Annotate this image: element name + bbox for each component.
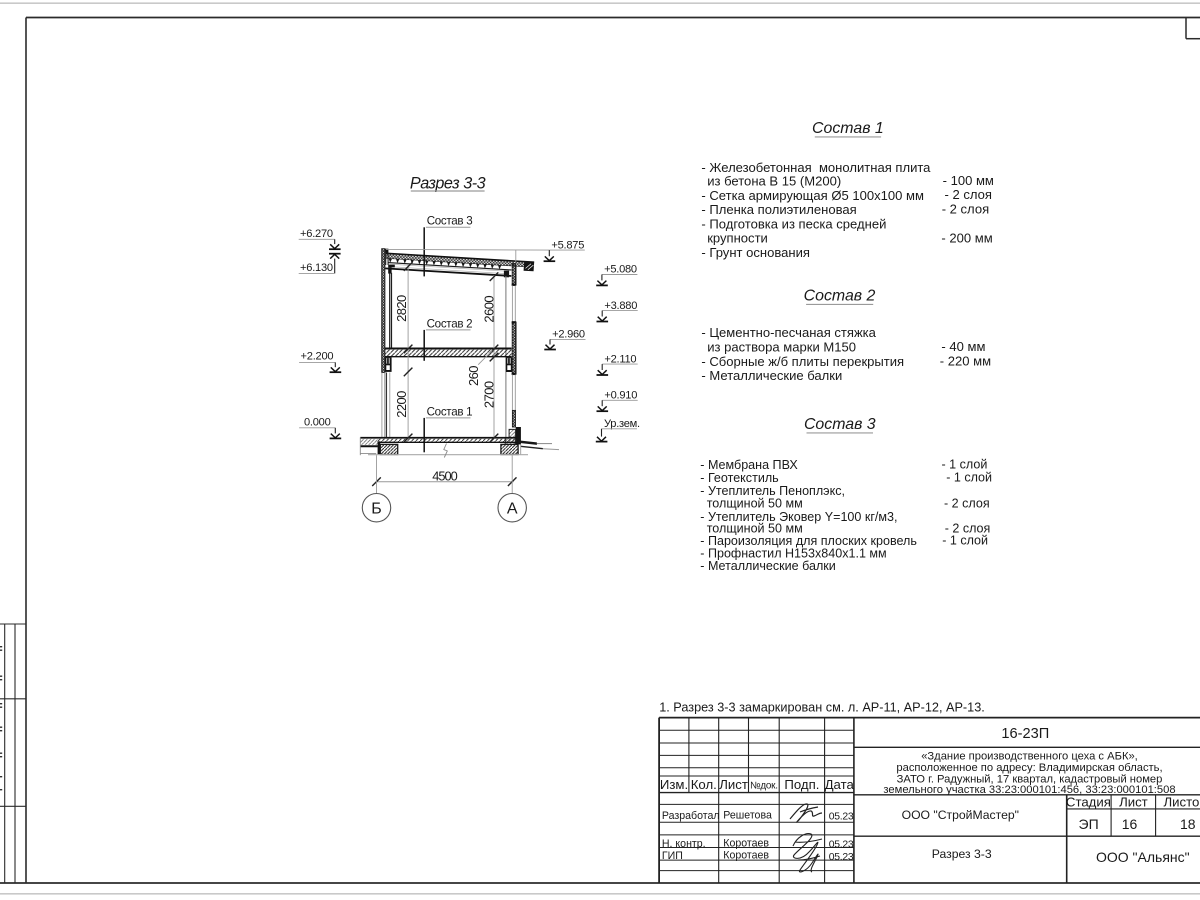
svg-text:№док.: №док. [750, 780, 778, 791]
svg-text:ООО "СтройМастер": ООО "СтройМастер" [902, 808, 1019, 822]
svg-text:толщиной 50 мм: толщиной 50 мм [707, 497, 803, 511]
svg-text:- 1 слой: - 1 слой [942, 534, 988, 548]
svg-text:05.23: 05.23 [829, 852, 854, 863]
svg-text:2700: 2700 [481, 381, 496, 408]
svg-text:Изм.: Изм. [660, 777, 688, 792]
svg-text:Состав 3: Состав 3 [427, 215, 473, 228]
svg-text:4500: 4500 [432, 468, 457, 483]
svg-text:из бетона В 15 (М200): из бетона В 15 (М200) [707, 173, 841, 188]
svg-text:Состав 1: Состав 1 [812, 120, 884, 137]
svg-text:2600: 2600 [481, 296, 496, 323]
svg-text:ГИП: ГИП [662, 850, 683, 862]
svg-text:крупности: крупности [707, 231, 768, 246]
svg-text:18: 18 [1180, 816, 1196, 832]
svg-text:- 220 мм: - 220 мм [940, 353, 991, 368]
svg-text:+2.200: +2.200 [301, 351, 334, 363]
svg-text:- 200 мм: - 200 мм [941, 230, 992, 245]
svg-text:Решетова: Решетова [723, 810, 772, 822]
svg-text:2820: 2820 [394, 295, 409, 322]
svg-text:Коротаев: Коротаев [723, 838, 769, 850]
svg-text:Б: Б [371, 500, 382, 517]
svg-text:16: 16 [1122, 816, 1138, 832]
svg-text:Подп.: Подп. [784, 777, 819, 792]
svg-text:А: А [507, 500, 518, 517]
svg-text:Коротаев: Коротаев [723, 850, 769, 862]
svg-text:Ур.зем.: Ур.зем. [604, 418, 640, 430]
svg-text:- Металлические балки: - Металлические балки [701, 368, 842, 383]
svg-text:«Здание производственного цеха: «Здание производственного цеха с АБК», [921, 750, 1138, 762]
svg-text:- Сборные ж/б плиты перекрытия: - Сборные ж/б плиты перекрытия [701, 354, 904, 369]
svg-text:16-23П: 16-23П [1001, 726, 1049, 742]
svg-text:Лист: Лист [719, 777, 748, 792]
svg-text:- Грунт основания: - Грунт основания [701, 245, 810, 260]
svg-text:Дата: Дата [825, 777, 855, 792]
svg-text:расположенное по адресу: Влади: расположенное по адресу: Владимирская об… [896, 762, 1162, 774]
svg-text:- Металлические балки: - Металлические балки [700, 559, 836, 573]
svg-text:Состав 2: Состав 2 [804, 288, 876, 305]
svg-text:1. Разрез 3-3 замаркирован см.: 1. Разрез 3-3 замаркирован см. л. АР-11,… [659, 701, 985, 715]
svg-text:- 100 мм: - 100 мм [943, 173, 994, 188]
svg-text:Листов: Листов [1164, 795, 1200, 810]
svg-text:Состав 3: Состав 3 [804, 416, 876, 433]
svg-text:- 2 слоя: - 2 слоя [945, 187, 992, 202]
svg-text:Разрез 3-3: Разрез 3-3 [410, 174, 486, 192]
svg-text:Н. контр.: Н. контр. [662, 838, 706, 850]
svg-text:- Цементно-песчаная стяжка: - Цементно-песчаная стяжка [701, 325, 876, 340]
svg-text:Разработал: Разработал [662, 810, 720, 822]
svg-text:Состав 2: Состав 2 [427, 317, 473, 330]
svg-text:Стадия: Стадия [1066, 795, 1111, 810]
svg-text:+3.880: +3.880 [604, 300, 637, 312]
svg-text:+6.270: +6.270 [300, 228, 333, 240]
svg-text:- 2 слоя: - 2 слоя [944, 496, 990, 510]
svg-text:+5.080: +5.080 [604, 264, 637, 276]
svg-text:- 40 мм: - 40 мм [941, 339, 985, 354]
svg-text:+0.910: +0.910 [604, 390, 637, 402]
svg-text:- Сетка армирующая Ø5 100х100: - Сетка армирующая Ø5 100х100 мм [701, 188, 924, 203]
svg-text:Лист: Лист [1119, 794, 1148, 809]
svg-text:260: 260 [466, 366, 481, 386]
svg-text:- Геотекстиль: - Геотекстиль [700, 471, 779, 485]
svg-text:- 1 слой: - 1 слой [942, 458, 988, 472]
svg-text:+2.960: +2.960 [552, 329, 585, 341]
svg-text:- 2 слоя: - 2 слоя [942, 202, 989, 217]
svg-text:Разрез 3-3: Разрез 3-3 [932, 847, 992, 861]
svg-text:Кол.: Кол. [691, 777, 717, 792]
svg-text:+2.110: +2.110 [604, 353, 636, 365]
svg-text:05.23: 05.23 [829, 812, 854, 823]
svg-text:0.000: 0.000 [304, 416, 331, 428]
svg-text:Состав 1: Состав 1 [427, 405, 473, 418]
svg-text:05.23: 05.23 [829, 840, 854, 851]
svg-text:2200: 2200 [394, 391, 409, 418]
svg-text:из раствора марки М150: из раствора марки М150 [707, 339, 856, 354]
svg-text:+6.130: +6.130 [300, 262, 333, 274]
svg-text:ООО "Альянс": ООО "Альянс" [1096, 849, 1190, 865]
svg-text:- Пленка полиэтиленовая: - Пленка полиэтиленовая [701, 202, 856, 217]
svg-text:ЭП: ЭП [1079, 816, 1099, 832]
svg-text:- Подготовка из песка средней: - Подготовка из песка средней [701, 216, 886, 231]
svg-text:- 1 слой: - 1 слой [946, 471, 992, 485]
